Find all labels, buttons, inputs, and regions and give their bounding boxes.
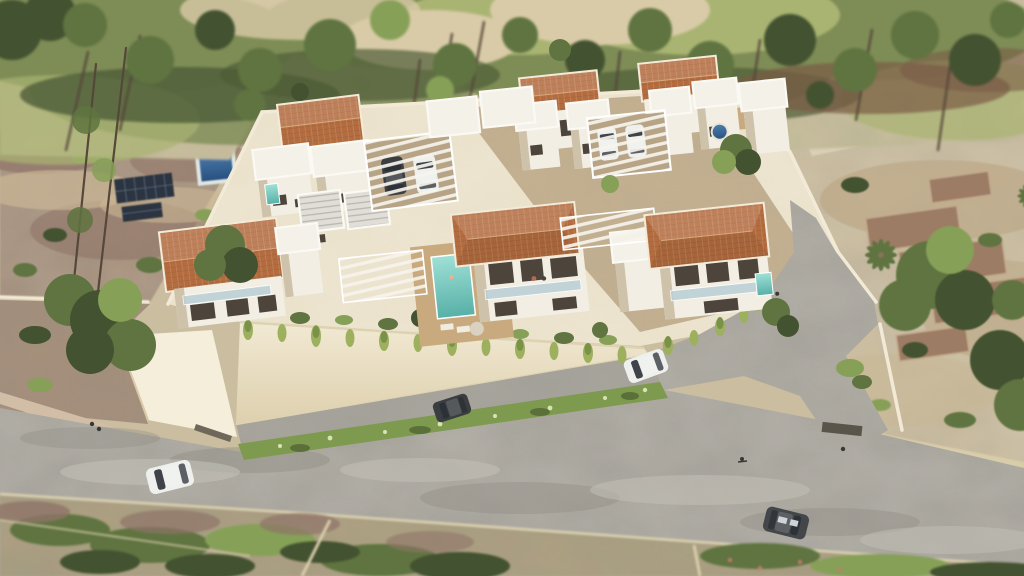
aerial-render-svg [0, 0, 1024, 576]
tree-courtyard-north [549, 39, 571, 61]
tree-plot-nw-corner [291, 83, 309, 101]
render-viewport: Aerial 3D architectural rendering of a w… [0, 0, 1024, 576]
plunge-pool-nw [265, 183, 280, 204]
shrub-wall-corner [836, 359, 864, 377]
carport-east [587, 110, 671, 178]
pedestrian-2 [97, 427, 101, 431]
pergola-west [364, 131, 458, 211]
villa-southeast-roof [644, 203, 769, 269]
plunge-pool-se [755, 272, 773, 296]
carport-west [364, 131, 458, 211]
pedestrian-crossing [841, 447, 845, 451]
tree-court-small [601, 175, 619, 193]
pergola-east [587, 110, 671, 178]
pedestrian-1 [90, 422, 94, 426]
